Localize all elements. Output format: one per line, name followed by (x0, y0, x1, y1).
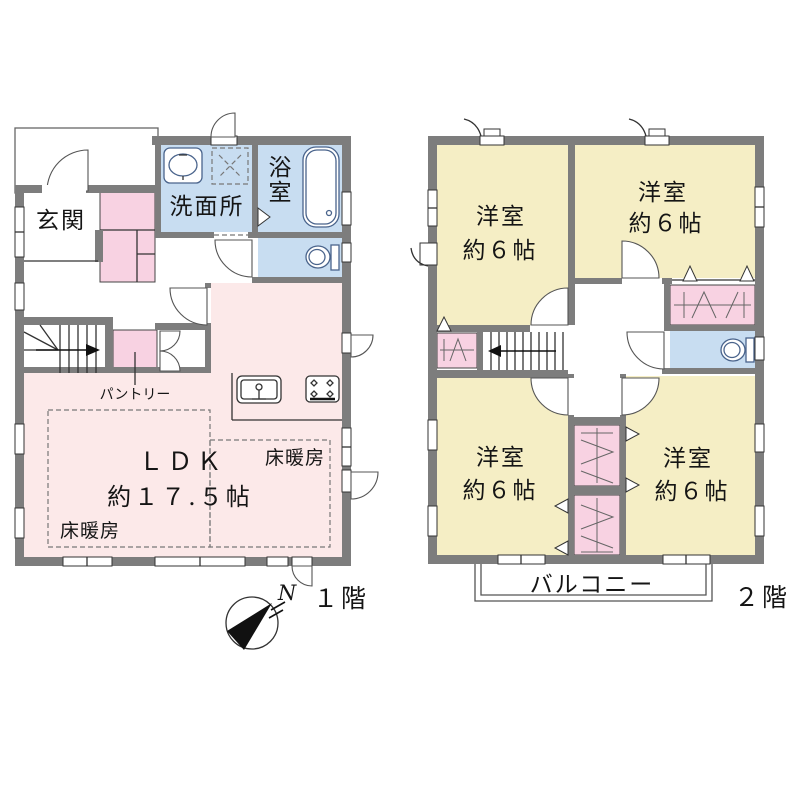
kitchen-sink-icon (237, 376, 281, 403)
utility-door (211, 113, 235, 137)
stove-icon (306, 376, 339, 402)
wall2-br-stub (620, 374, 626, 378)
bedroom-tl-name-label: 洋室 (476, 204, 526, 230)
floorplan-page: 玄関 洗面所 浴室 パントリー ＬＤＫ 約１７.５帖 床暖房 床暖房 １階 N (0, 0, 800, 800)
floor2-label: ２階 (734, 583, 790, 612)
pantry-label: パントリー (100, 387, 171, 403)
wall-top (152, 136, 351, 145)
wall2-closet-top (568, 417, 626, 425)
wall2-bl-right (568, 415, 574, 555)
wall2-closet-mid (568, 486, 626, 495)
wall-washroom-bottom-b (248, 232, 351, 238)
wall2-tl-tr (568, 145, 575, 325)
bedroom-bl-name-label: 洋室 (476, 445, 526, 471)
right-exterior-door-1 (351, 335, 373, 357)
bedroom-bl-area-label: 約６帖 (463, 478, 538, 504)
wall2-closet-stairs (477, 332, 483, 370)
north-label: N (277, 581, 297, 605)
ldk-title-label: ＬＤＫ (138, 447, 225, 476)
wall2-toilet-bottom (662, 368, 755, 374)
floor1-plan: 玄関 洗面所 浴室 パントリー ＬＤＫ 約１７.５帖 床暖房 床暖房 １階 (15, 113, 378, 613)
bottom-door-gap (292, 557, 312, 566)
entrance-door-gap (42, 185, 86, 193)
bedroom-br-name-label: 洋室 (663, 446, 713, 472)
toilet2-icon (721, 338, 754, 362)
bedroom-tl-area-label: 約６帖 (463, 238, 538, 264)
wall-ldk-top-left (24, 367, 211, 373)
wall-washroom-bath (252, 145, 258, 232)
bedroom-tr-area-label: 約６帖 (629, 211, 704, 237)
wall2-stairs-bottom (437, 370, 568, 378)
floorplan-drawing: 玄関 洗面所 浴室 パントリー ＬＤＫ 約１７.５帖 床暖房 床暖房 １階 N (0, 0, 800, 800)
wall-stairs-top (15, 317, 113, 325)
compass-icon: N (226, 581, 297, 650)
entrance-label: 玄関 (36, 208, 86, 234)
wall-washroom-left (155, 145, 161, 232)
wall2-closet-left (664, 284, 670, 331)
right-door-gap-1 (342, 333, 351, 353)
floor-heating-label-right: 床暖房 (265, 447, 325, 469)
sink-icon (164, 148, 202, 183)
wall2-tr-bottom-b (662, 278, 672, 284)
bathtub-icon (303, 147, 339, 227)
floor1-label: １階 (313, 584, 369, 613)
wall2-bl-stub (568, 374, 574, 378)
wall2-bottom (428, 555, 764, 564)
balcony-label: バルコニー (530, 572, 655, 598)
bedroom-br-area-label: 約６帖 (655, 479, 730, 505)
wall2-top (428, 136, 764, 145)
washroom-label: 洗面所 (170, 194, 245, 220)
floor-heating-label-left: 床暖房 (60, 520, 120, 542)
bath-label: 浴室 (264, 155, 292, 205)
right-door-gap-2 (342, 470, 351, 492)
wall2-tr-bottom-a (575, 278, 622, 284)
wall2-br-left (620, 415, 626, 555)
bedroom-tr-name-label: 洋室 (638, 180, 688, 206)
toilet-icon (306, 245, 339, 270)
wall-toilet1-bottom (252, 277, 351, 283)
wall-stairs-pantry (105, 317, 113, 373)
wall-washroom-bottom-a (155, 232, 214, 238)
right-exterior-door-2 (351, 472, 378, 499)
wall-closet-stub (95, 230, 103, 262)
floor2-plan: 洋室 約６帖 洋室 約６帖 洋室 約６帖 洋室 約６帖 バルコニー ２階 (411, 119, 790, 612)
ldk-area-label: 約１７.５帖 (107, 483, 253, 511)
wall2-closet-toilet (664, 325, 755, 331)
entrance-closet (100, 190, 155, 282)
